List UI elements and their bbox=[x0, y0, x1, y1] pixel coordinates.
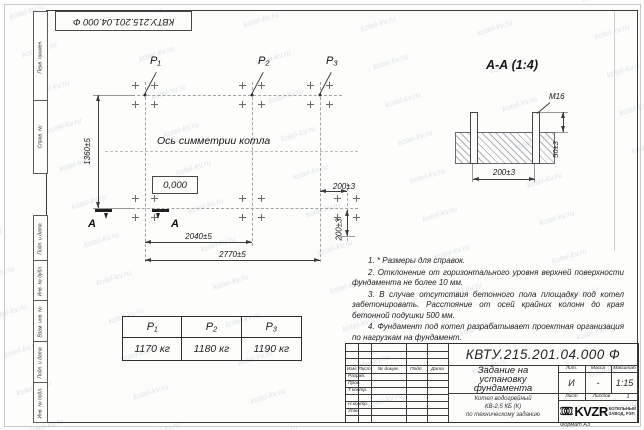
section-view-title: А-А (1:4) bbox=[462, 58, 562, 72]
sheet-label: Лист bbox=[558, 393, 585, 400]
note-1: 1. * Размеры для справок. bbox=[352, 256, 624, 267]
company-name: KVZR bbox=[574, 404, 607, 419]
note-3: 3. В случае отсутствия бетонного пола пл… bbox=[352, 290, 624, 322]
extension-line bbox=[555, 132, 568, 133]
row-label-nkontr: Н.контр. bbox=[348, 401, 372, 408]
dimension-line-200-section bbox=[473, 179, 535, 180]
col-header-izm: Изм. bbox=[346, 365, 358, 373]
coil-spring-icon bbox=[560, 403, 573, 419]
note-2: 2. Отклонение от горизонтального уровня … bbox=[352, 268, 624, 289]
row-label-prov: Пров. bbox=[348, 380, 372, 387]
anchor-bolt-left bbox=[470, 112, 478, 164]
product-name-line2: КВ-2,5 КБ (К) bbox=[448, 403, 558, 411]
load-table-value-p2: 1180 кг bbox=[182, 338, 241, 360]
product-name: Котел водогрейный КВ-2,5 КБ (К) по техни… bbox=[448, 395, 558, 422]
sheets-label: Листов bbox=[585, 393, 618, 400]
mass-value: - bbox=[585, 372, 611, 393]
scale-value: 1:15 bbox=[611, 372, 638, 393]
col-header-docnum: № докум. bbox=[371, 365, 406, 373]
lit-value: И bbox=[558, 372, 585, 393]
notes-block: 1. * Размеры для справок. 2. Отклонение … bbox=[352, 256, 624, 344]
mass-header: Масса bbox=[585, 365, 611, 372]
row-label-utv: Утв. bbox=[348, 408, 372, 415]
doc-number: КВТУ.215.201.04.000 Ф bbox=[450, 346, 636, 363]
company-logo: KVZR КОТЕЛЬНЫЙ ЗАВОД, РЭП bbox=[560, 401, 636, 421]
load-table-header-p3: P₃ bbox=[242, 317, 301, 338]
sheets-value: 1 bbox=[618, 393, 638, 400]
load-table: P₁ P₂ P₃ 1170 кг 1180 кг 1190 кг bbox=[122, 316, 302, 361]
drawing-sheet: kotel-kv.ru КВТУ.215.201.04.000 Ф Перв. … bbox=[0, 0, 644, 430]
title-block: КВТУ.215.201.04.000 Ф Изм. Лист № докум.… bbox=[345, 343, 639, 423]
col-header-podp: Подп. bbox=[406, 365, 427, 373]
product-name-line1: Котел водогрейный bbox=[448, 395, 558, 403]
lit-header: Лит. bbox=[558, 365, 585, 372]
load-table-value-p3: 1190 кг bbox=[242, 338, 301, 360]
product-name-line3: по техническому заданию bbox=[448, 411, 558, 419]
note-4: 4. Фундамент под котел разрабатывает про… bbox=[352, 322, 624, 343]
scale-header: Масштаб bbox=[611, 365, 638, 372]
format-label: Формат А3 bbox=[530, 422, 620, 428]
load-table-value-p1: 1170 кг bbox=[123, 338, 182, 360]
col-header-data: Дата bbox=[427, 365, 448, 373]
doc-title: Задание на установку фундамента bbox=[448, 366, 558, 393]
dimension-label-200-section: 200±3 bbox=[473, 168, 535, 177]
row-label-tkontr: Т.контр. bbox=[348, 387, 372, 394]
dimension-label-50: 50±3 bbox=[549, 135, 561, 163]
col-header-list: Лист bbox=[358, 365, 371, 373]
dimension-line-50 bbox=[563, 112, 564, 132]
thread-label-m16: М16 bbox=[549, 92, 565, 101]
load-table-header-p1: P₁ bbox=[123, 317, 182, 338]
row-label-razrab: Разраб. bbox=[348, 373, 372, 380]
doc-title-line3: фундамента bbox=[448, 384, 558, 393]
anchor-bolt-right bbox=[532, 112, 540, 164]
load-table-header-p2: P₂ bbox=[182, 317, 241, 338]
company-subtitle: КОТЕЛЬНЫЙ ЗАВОД, РЭП bbox=[609, 406, 636, 416]
